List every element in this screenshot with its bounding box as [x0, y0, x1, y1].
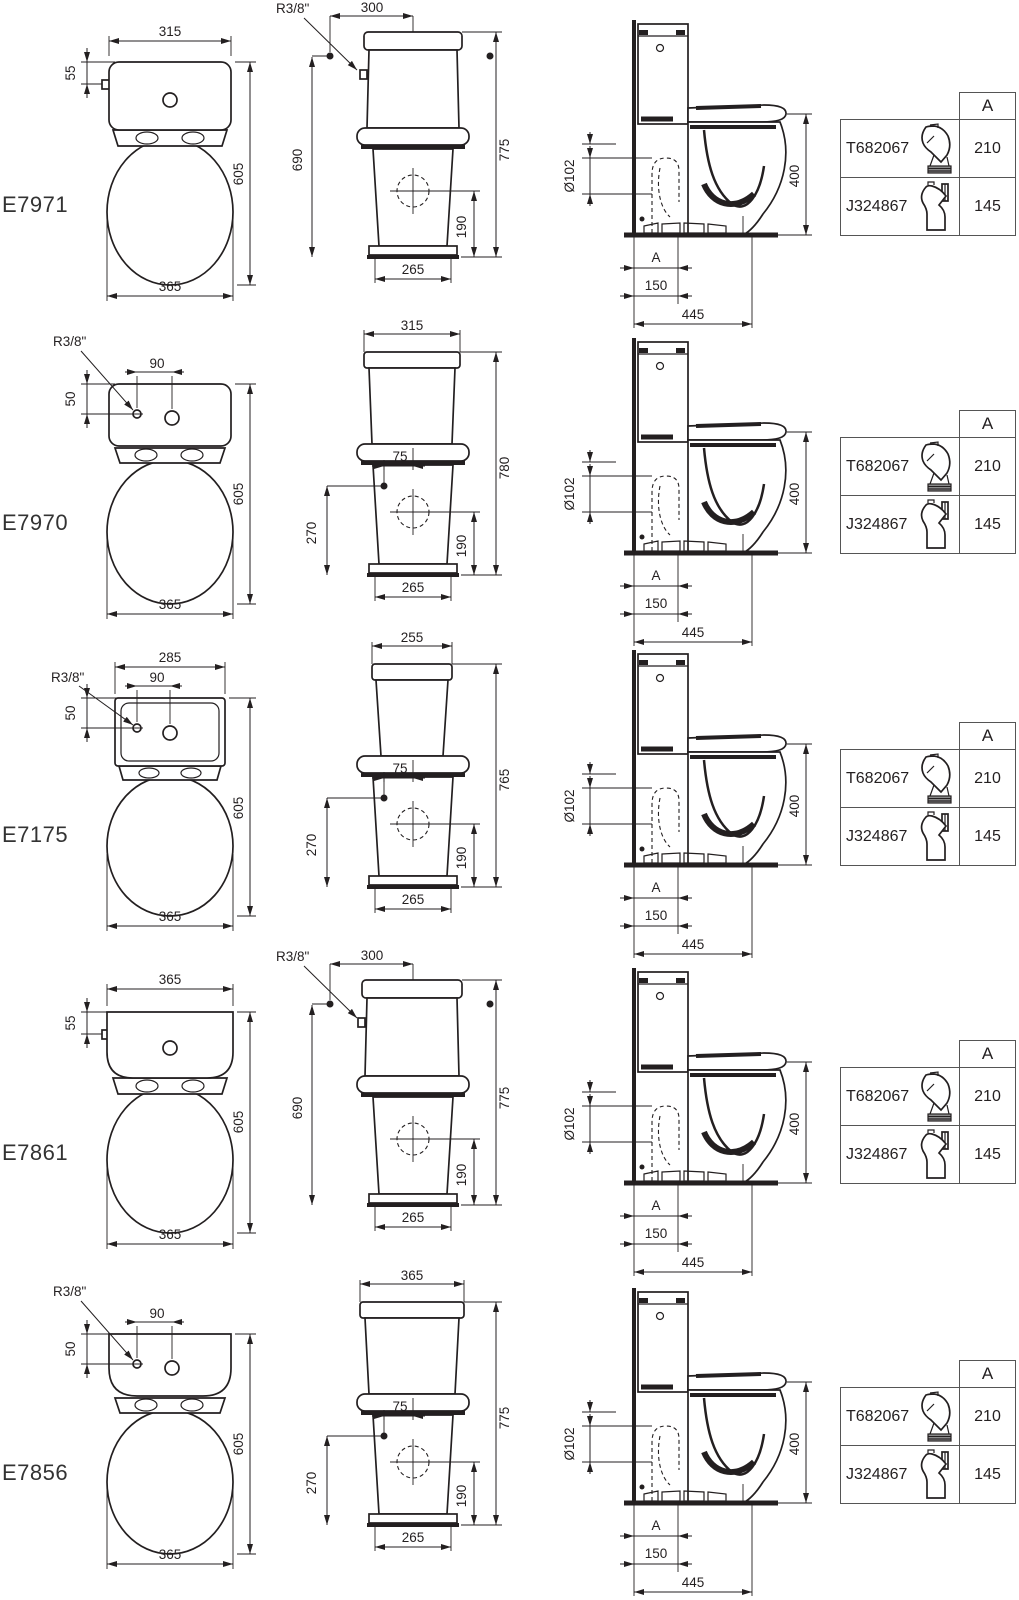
dim-depth: 445 — [682, 1575, 705, 1590]
dim-supply-offset: 75 — [392, 1399, 407, 1414]
dim-supply-height: 270 — [304, 834, 319, 857]
front-view: R3/8" 90 50 605 365 — [45, 1276, 265, 1576]
table-header-a: A — [959, 92, 1016, 119]
toilet-front-drawing — [107, 1334, 233, 1554]
toilet-side-drawing — [624, 650, 786, 865]
elevation-view: R3/8" 300 690 775 190 265 — [272, 0, 520, 304]
dim-a-label: A — [651, 880, 660, 895]
elevation-view: R3/8" 300 690 775 190 265 — [272, 948, 520, 1252]
straight-connector-icon — [914, 1449, 954, 1501]
dim-tank-width: 255 — [401, 630, 424, 645]
dim-bowl-width: 365 — [159, 1227, 182, 1242]
fitting-value: 210 — [960, 1068, 1015, 1125]
fitting-value: 145 — [960, 178, 1015, 235]
fitting-code: T682067 — [846, 140, 909, 158]
dim-base-width: 265 — [402, 262, 425, 277]
table-header-a: A — [959, 1360, 1016, 1387]
dim-outlet-diameter: Ø102 — [562, 159, 577, 192]
dim-tank-width: 315 — [401, 318, 424, 333]
side-section-view: Ø102 A 150 445 400 — [556, 1274, 820, 1600]
dim-total-depth: 605 — [231, 163, 246, 186]
dim-bowl-width: 365 — [159, 279, 182, 294]
table-row: T682067 210 — [841, 120, 1015, 178]
toilet-side-drawing — [624, 20, 786, 235]
dim-total-depth: 605 — [231, 797, 246, 820]
dim-supply-offset: 75 — [392, 449, 407, 464]
table-row: T682067 210 — [841, 750, 1015, 808]
dim-hole-offset: 90 — [149, 356, 164, 371]
fitting-code: J324867 — [846, 516, 907, 534]
dim-outlet-offset: 150 — [645, 1226, 668, 1241]
dim-seat-height: 400 — [787, 1113, 802, 1136]
table-header-a: A — [959, 1040, 1016, 1067]
table-row: J324867 145 — [841, 1126, 1015, 1183]
front-view: 315 55 605 365 — [45, 8, 265, 308]
side-section-view: Ø102 A 150 445 400 — [556, 954, 820, 1280]
fitting-code: J324867 — [846, 1146, 907, 1164]
toilet-front-drawing — [107, 384, 233, 604]
fitting-value: 210 — [960, 120, 1015, 177]
dim-tank-width: 285 — [159, 650, 182, 665]
front-view: R3/8" 90 50 605 365 — [45, 326, 265, 626]
dim-base-width: 265 — [402, 1210, 425, 1225]
fitting-value: 210 — [960, 438, 1015, 495]
elevation-view: 365 75 270 775 190 265 — [272, 1268, 520, 1572]
dim-outlet-diameter: Ø102 — [562, 1107, 577, 1140]
dim-bowl-width: 365 — [159, 597, 182, 612]
toilet-front-drawing — [107, 698, 233, 916]
dim-supply-height: 270 — [304, 1472, 319, 1495]
table-header-a: A — [959, 722, 1016, 749]
dim-supply-height: 270 — [304, 522, 319, 545]
dim-a-label: A — [651, 250, 660, 265]
angled-connector-icon — [914, 1071, 954, 1123]
dim-base-width: 265 — [402, 1530, 425, 1545]
dim-total-depth: 605 — [231, 1111, 246, 1134]
dim-total-depth: 605 — [231, 483, 246, 506]
table-row: J324867 145 — [841, 808, 1015, 865]
fitting-code: T682067 — [846, 770, 909, 788]
angled-connector-icon — [914, 1391, 954, 1443]
dim-total-height: 775 — [497, 1407, 512, 1430]
dim-a-label: A — [651, 568, 660, 583]
dim-hole-offset: 90 — [149, 1306, 164, 1321]
dim-seat-height: 400 — [787, 795, 802, 818]
dim-flush-height: 190 — [454, 1485, 469, 1508]
dim-tank-width: 365 — [401, 1268, 424, 1283]
dim-bowl-width: 365 — [159, 1547, 182, 1562]
dim-flush-height: 190 — [454, 1164, 469, 1187]
dim-top-width: 315 — [159, 24, 182, 39]
fitting-value: 210 — [960, 750, 1015, 807]
fitting-table: A T682067 210 J324867 — [840, 722, 1016, 866]
toilet-side-drawing — [624, 338, 786, 553]
toilet-side-drawing — [624, 1288, 786, 1503]
fitting-code: T682067 — [846, 1088, 909, 1106]
dim-outlet-offset: 150 — [645, 596, 668, 611]
fitting-table: A T682067 210 J324867 — [840, 92, 1016, 236]
dim-seat-height: 400 — [787, 165, 802, 188]
dim-total-height: 775 — [497, 139, 512, 162]
dim-bowl-width: 365 — [159, 909, 182, 924]
dim-flush-height: 190 — [454, 847, 469, 870]
dim-a-label: A — [651, 1518, 660, 1533]
dim-total-height: 765 — [497, 769, 512, 792]
dim-outlet-diameter: Ø102 — [562, 1427, 577, 1460]
model-row-e7970: E7970 R3/8" 90 50 605 — [0, 318, 1019, 638]
model-row-e7971: E7971 315 55 605 365 — [0, 0, 1019, 320]
dim-supply-height: 690 — [290, 1097, 305, 1120]
dim-inlet-height: 50 — [63, 705, 78, 720]
dim-inlet-height: 50 — [63, 391, 78, 406]
model-row-e7861: E7861 365 55 605 365 — [0, 948, 1019, 1268]
fitting-table: A T682067 210 J324867 — [840, 1360, 1016, 1504]
fitting-value: 145 — [960, 808, 1015, 865]
dim-seat-height: 400 — [787, 483, 802, 506]
fitting-code: J324867 — [846, 1466, 907, 1484]
dim-supply-fitting: R3/8" — [276, 1, 310, 16]
fitting-value: 145 — [960, 1126, 1015, 1183]
dim-inlet-height: 55 — [63, 1015, 78, 1030]
dim-total-height: 780 — [497, 457, 512, 480]
toilet-side-drawing — [624, 968, 786, 1183]
dim-total-height: 775 — [497, 1087, 512, 1110]
dim-total-depth: 605 — [231, 1433, 246, 1456]
dim-inlet-height: 55 — [63, 65, 78, 80]
dim-outlet-offset: 150 — [645, 1546, 668, 1561]
table-row: T682067 210 — [841, 1068, 1015, 1126]
side-section-view: Ø102 A 150 445 400 — [556, 6, 820, 332]
fitting-value: 145 — [960, 1446, 1015, 1503]
toilet-front-drawing — [102, 1012, 233, 1233]
dim-supply-fitting: R3/8" — [53, 334, 87, 349]
side-section-view: Ø102 A 150 445 400 — [556, 324, 820, 650]
front-view: 365 55 605 365 — [45, 956, 265, 1256]
fitting-code: J324867 — [846, 198, 907, 216]
dim-supply-fitting: R3/8" — [276, 949, 310, 964]
dim-top-width: 365 — [159, 972, 182, 987]
table-row: T682067 210 — [841, 438, 1015, 496]
dim-outlet-diameter: Ø102 — [562, 477, 577, 510]
dim-outlet-diameter: Ø102 — [562, 789, 577, 822]
straight-connector-icon — [914, 811, 954, 863]
fitting-value: 145 — [960, 496, 1015, 553]
toilet-front-drawing — [102, 62, 233, 285]
fitting-code: T682067 — [846, 1408, 909, 1426]
model-row-e7175: E7175 285 R3/8" 90 50 — [0, 630, 1019, 950]
angled-connector-icon — [914, 753, 954, 805]
dim-a-label: A — [651, 1198, 660, 1213]
fitting-value: 210 — [960, 1388, 1015, 1445]
dim-flush-height: 190 — [454, 216, 469, 239]
straight-connector-icon — [914, 1129, 954, 1181]
table-row: J324867 145 — [841, 496, 1015, 553]
angled-connector-icon — [914, 123, 954, 175]
table-row: J324867 145 — [841, 1446, 1015, 1503]
side-section-view: Ø102 A 150 445 400 — [556, 636, 820, 962]
elevation-view: 255 75 270 765 190 265 — [272, 630, 520, 934]
dim-base-width: 265 — [402, 580, 425, 595]
dim-outlet-offset: 150 — [645, 278, 668, 293]
straight-connector-icon — [914, 499, 954, 551]
dim-flush-height: 190 — [454, 535, 469, 558]
front-view: 285 R3/8" 90 50 605 365 — [45, 638, 265, 938]
dim-supply-height: 690 — [290, 149, 305, 172]
dim-inlet-height: 50 — [63, 1341, 78, 1356]
model-row-e7856: E7856 R3/8" 90 50 605 — [0, 1268, 1019, 1600]
fitting-table: A T682067 210 J324867 — [840, 410, 1016, 554]
dim-supply-fitting: R3/8" — [51, 670, 85, 685]
dim-supply-offset: 75 — [392, 761, 407, 776]
fitting-table: A T682067 210 J324867 — [840, 1040, 1016, 1184]
dim-hole-offset: 90 — [149, 670, 164, 685]
elevation-view: 315 75 270 780 190 265 — [272, 318, 520, 622]
table-header-a: A — [959, 410, 1016, 437]
table-row: T682067 210 — [841, 1388, 1015, 1446]
dim-supply-offset: 300 — [361, 948, 384, 963]
straight-connector-icon — [914, 181, 954, 233]
dim-base-width: 265 — [402, 892, 425, 907]
angled-connector-icon — [914, 441, 954, 493]
dim-outlet-offset: 150 — [645, 908, 668, 923]
table-row: J324867 145 — [841, 178, 1015, 235]
dim-seat-height: 400 — [787, 1433, 802, 1456]
fitting-code: J324867 — [846, 828, 907, 846]
dim-supply-fitting: R3/8" — [53, 1284, 87, 1299]
fitting-code: T682067 — [846, 458, 909, 476]
dim-supply-offset: 300 — [361, 0, 384, 15]
